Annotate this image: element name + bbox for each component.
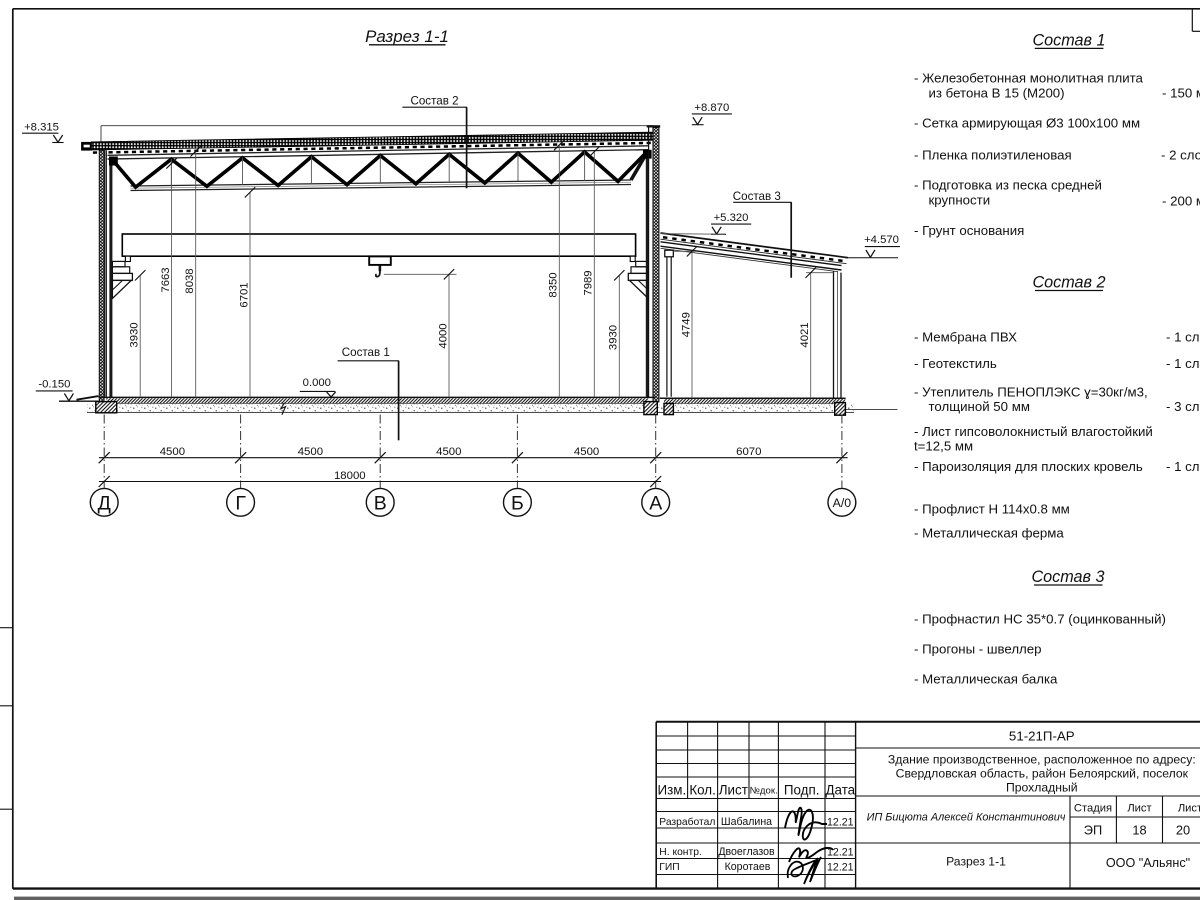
svg-text:Здание производственное, распо: Здание производственное, расположенное п…: [888, 753, 1196, 767]
svg-text:- Пленка полиэтиленовая: - Пленка полиэтиленовая: [914, 147, 1072, 162]
svg-text:+8.870: +8.870: [694, 102, 729, 114]
svg-text:12.21: 12.21: [827, 816, 854, 828]
svg-text:ИП Бицюта Алексей Константинов: ИП Бицюта Алексей Константинович: [867, 811, 1066, 823]
svg-text:Изм.: Изм.: [658, 783, 687, 798]
svg-text:7989: 7989: [583, 270, 595, 295]
svg-text:-0.150: -0.150: [38, 379, 70, 391]
svg-text:4500: 4500: [574, 446, 599, 458]
svg-text:Состав 2: Состав 2: [410, 94, 458, 107]
svg-text:Лист: Лист: [719, 783, 748, 798]
svg-text:- Железобетонная монолитная п: - Железобетонная монолитная плита: [914, 71, 1144, 86]
svg-text:Д: Д: [98, 492, 111, 514]
svg-text:Свердловская область, район Бе: Свердловская область, район Белоярский, …: [896, 767, 1189, 781]
svg-text:8038: 8038: [184, 268, 196, 293]
svg-text:+8.315: +8.315: [24, 121, 59, 133]
svg-text:ЭП: ЭП: [1084, 822, 1102, 837]
svg-text:18000: 18000: [334, 470, 366, 482]
svg-text:ООО "Альянс": ООО "Альянс": [1106, 856, 1190, 870]
svg-text:18: 18: [1132, 822, 1146, 837]
svg-text:Б: Б: [511, 492, 524, 514]
svg-text:- Мембрана ПВХ: - Мембрана ПВХ: [914, 329, 1017, 344]
svg-text:- Лист гипсоволокнистый влагос: - Лист гипсоволокнистый влагостойкий: [914, 424, 1153, 439]
svg-text:4021: 4021: [799, 322, 811, 347]
svg-text:4500: 4500: [436, 446, 461, 458]
svg-text:А/0: А/0: [833, 496, 852, 510]
svg-text:Двоеглазов: Двоеглазов: [718, 846, 775, 858]
svg-text:- 1 слой: - 1 слой: [1166, 356, 1200, 371]
svg-text:- 2 слоя: - 2 слоя: [1161, 147, 1200, 162]
svg-text:Шабалина: Шабалина: [721, 816, 772, 828]
svg-text:Состав 3: Состав 3: [733, 190, 781, 203]
svg-text:- Грунт основания: - Грунт основания: [914, 223, 1024, 238]
svg-text:51-21П-АР: 51-21П-АР: [1009, 728, 1075, 743]
svg-text:из бетона В 15 (М200): из бетона В 15 (М200): [929, 86, 1065, 101]
svg-text:Состав 1: Состав 1: [1032, 32, 1105, 50]
svg-text:+4.570: +4.570: [864, 234, 899, 246]
svg-text:- Металлическая балка: - Металлическая балка: [914, 671, 1058, 686]
svg-text:Подп.: Подп.: [784, 783, 820, 798]
svg-text:- Сетка армирующая Ø3 100х100: - Сетка армирующая Ø3 100х100 мм: [914, 115, 1140, 130]
svg-text:Н. контр.: Н. контр.: [659, 847, 702, 858]
svg-text:7663: 7663: [160, 267, 172, 292]
svg-text:- Металлическая ферма: - Металлическая ферма: [914, 525, 1064, 540]
svg-text:В: В: [374, 492, 387, 514]
svg-text:- Подготовка из песка средней: - Подготовка из песка средней: [914, 177, 1102, 192]
svg-text:4749: 4749: [680, 312, 692, 337]
svg-text:Прохладный: Прохладный: [1006, 781, 1078, 795]
svg-text:ГИП: ГИП: [659, 862, 679, 873]
svg-text:Разработал: Разработал: [659, 816, 715, 828]
svg-text:Состав 1: Состав 1: [342, 346, 390, 359]
svg-text:12.21: 12.21: [827, 861, 854, 873]
svg-text:крупности: крупности: [929, 192, 991, 207]
svg-text:- Утеплитель ПЕНОПЛЭКС ɣ=30кг/: - Утеплитель ПЕНОПЛЭКС ɣ=30кг/м3,: [914, 384, 1148, 399]
svg-text:№док.: №док.: [750, 786, 778, 797]
svg-text:Дата: Дата: [825, 783, 855, 798]
svg-text:Листов: Листов: [1178, 802, 1200, 814]
svg-text:0.000: 0.000: [303, 377, 331, 389]
svg-text:20: 20: [1176, 822, 1190, 837]
svg-text:Г: Г: [235, 492, 246, 514]
svg-text:Состав 3: Состав 3: [1031, 568, 1104, 586]
svg-text:- 1 слой: - 1 слой: [1166, 459, 1200, 474]
svg-text:- Профлист Н 114х0.8 мм: - Профлист Н 114х0.8 мм: [914, 501, 1070, 516]
svg-text:- 150 мм: - 150 мм: [1162, 86, 1200, 101]
svg-text:- 1 слой: - 1 слой: [1166, 329, 1200, 344]
svg-text:А: А: [649, 492, 662, 514]
svg-text:4000: 4000: [437, 323, 449, 348]
svg-text:Состав 2: Состав 2: [1032, 274, 1105, 292]
svg-text:4500: 4500: [298, 446, 323, 458]
svg-text:- Геотекстиль: - Геотекстиль: [914, 356, 997, 371]
svg-text:Кол.: Кол.: [689, 783, 716, 798]
svg-text:толщиной 50 мм: толщиной 50 мм: [929, 399, 1030, 414]
svg-text:Лист: Лист: [1127, 802, 1151, 814]
svg-text:+5.320: +5.320: [714, 212, 749, 224]
svg-text:t=12,5 мм: t=12,5 мм: [914, 438, 973, 453]
svg-text:- 200 мм: - 200 мм: [1162, 193, 1200, 208]
svg-text:- 3 слоя: - 3 слоя: [1166, 399, 1200, 414]
svg-text:- Профнастил НС 35*0.7 (оцинко: - Профнастил НС 35*0.7 (оцинкованный): [914, 611, 1166, 626]
svg-text:- Прогоны - швеллер: - Прогоны - швеллер: [914, 641, 1042, 656]
svg-text:Стадия: Стадия: [1074, 802, 1112, 814]
svg-text:4500: 4500: [160, 446, 185, 458]
svg-text:Разрез 1-1: Разрез 1-1: [365, 27, 449, 46]
svg-text:Разрез 1-1: Разрез 1-1: [946, 854, 1006, 868]
svg-text:6701: 6701: [238, 282, 250, 307]
svg-text:Коротаев: Коротаев: [725, 861, 771, 873]
svg-text:3930: 3930: [129, 322, 141, 347]
svg-text:8350: 8350: [548, 272, 560, 297]
svg-text:3930: 3930: [608, 325, 620, 350]
svg-text:- Пароизоляция для плоских кро: - Пароизоляция для плоских кровель: [914, 459, 1143, 474]
svg-text:6070: 6070: [736, 446, 761, 458]
